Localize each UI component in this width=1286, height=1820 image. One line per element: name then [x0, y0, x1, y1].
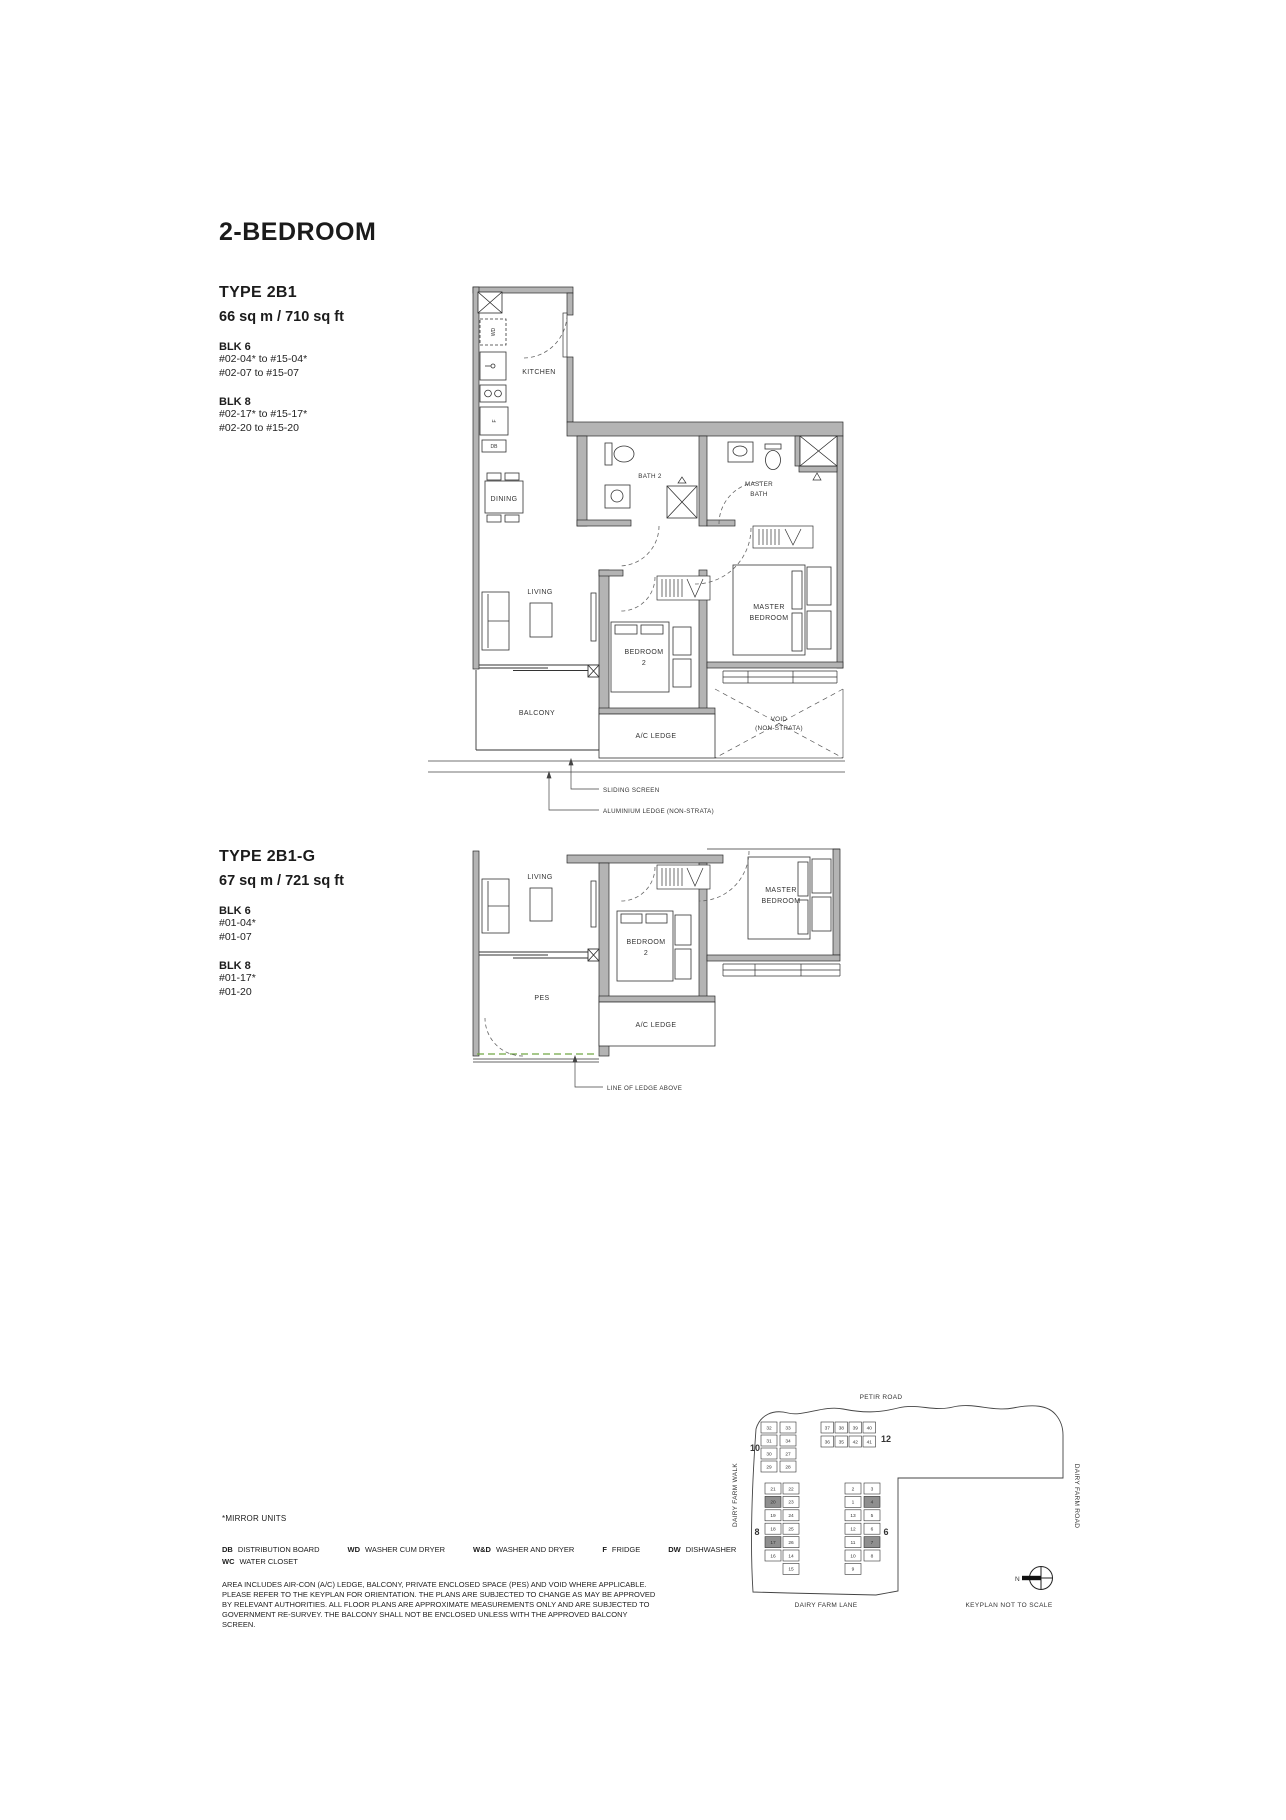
bedroom2-door-arc — [621, 867, 655, 901]
master-bedroom-label-1: MASTER — [765, 887, 797, 894]
keyplan-unit-number: 7 — [871, 1540, 874, 1546]
kitchen-label: KITCHEN — [522, 369, 556, 376]
void-label-1: VOID — [771, 716, 788, 723]
living-label: LIVING — [527, 874, 552, 881]
legend-item: FFRIDGE — [602, 1545, 640, 1554]
void-label-2: (NON-STRATA) — [755, 725, 803, 732]
sliding-screen-annotation: SLIDING SCREEN — [603, 787, 659, 794]
keyplan-unit-number: 13 — [850, 1513, 856, 1519]
ledge-leader — [573, 1056, 603, 1087]
kitchen-fixtures — [480, 319, 508, 452]
master-bath-fixtures — [728, 442, 781, 470]
keyplan-unit-number: 35 — [839, 1439, 845, 1445]
keyplan-block-number: 12 — [881, 1434, 891, 1444]
triangle-marker — [813, 473, 821, 480]
pes-boundary — [473, 1018, 599, 1062]
db-label: DB — [491, 444, 499, 450]
legend: *MIRROR UNITS DBDISTRIBUTION BOARD WDWAS… — [222, 1514, 667, 1630]
keyplan-unit-number: 4 — [871, 1500, 874, 1506]
keyplan-unit-number: 39 — [853, 1425, 859, 1431]
road-label-left: DAIRY FARM WALK — [732, 1463, 739, 1527]
keyplan-unit-number: 25 — [788, 1527, 794, 1533]
pes-label: PES — [534, 995, 549, 1002]
keyplan-block-number: 8 — [754, 1527, 759, 1537]
keyplan-unit-number: 6 — [871, 1527, 874, 1533]
bath2-door-arc — [619, 526, 659, 566]
keyplan-unit-number: 21 — [770, 1486, 776, 1492]
keyplan-unit-number: 28 — [785, 1464, 791, 1470]
balcony-outline — [476, 665, 599, 750]
bedroom2-wardrobe — [657, 576, 710, 600]
floorplan-type-2b1g: LIVING PES BEDROOM 2 MASTER BEDROOM A/C … — [403, 843, 853, 1173]
master-bath-door-arc — [719, 482, 761, 524]
keyplan-unit-number: 27 — [785, 1451, 791, 1457]
keyplan-unit-number: 42 — [853, 1439, 859, 1445]
keyplan-unit-number: 31 — [766, 1438, 772, 1444]
mirror-units-note: *MIRROR UNITS — [222, 1514, 667, 1523]
keyplan-unit-number: 2 — [852, 1486, 855, 1492]
master-wardrobe — [753, 526, 813, 548]
master-bath-label-2: BATH — [750, 491, 768, 498]
keyplan-unit-number: 1 — [852, 1500, 855, 1506]
keyplan-unit-number: 41 — [867, 1439, 873, 1445]
aluminium-ledge-annotation: ALUMINIUM LEDGE (NON-STRATA) — [603, 808, 714, 815]
brochure-page: 2-BEDROOM TYPE 2B1 66 sq m / 710 sq ft B… — [0, 0, 1286, 1820]
bedroom2-label-1: BEDROOM — [627, 939, 666, 946]
entrance-door — [523, 313, 567, 358]
bedroom2-label-2: 2 — [644, 950, 648, 957]
legend-row-2: WCWATER CLOSET — [222, 1557, 667, 1566]
legend-item: WCWATER CLOSET — [222, 1557, 298, 1566]
keyplan-note: KEYPLAN NOT TO SCALE — [965, 1602, 1052, 1609]
living-label: LIVING — [527, 589, 552, 596]
keyplan-unit-number: 15 — [788, 1567, 794, 1573]
dining-label: DINING — [491, 496, 518, 503]
keyplan-unit-number: 34 — [785, 1438, 791, 1444]
line-of-ledge-annotation: LINE OF LEDGE ABOVE — [607, 1085, 682, 1092]
balcony-label: BALCONY — [519, 710, 555, 717]
master-bedroom-label-2: BEDROOM — [750, 615, 789, 622]
keyplan-unit-number: 5 — [871, 1513, 874, 1519]
master-bath-label-1: MASTER — [745, 481, 773, 488]
road-label-bottom: DAIRY FARM LANE — [795, 1602, 858, 1609]
disclaimer-text: AREA INCLUDES AIR-CON (A/C) LEDGE, BALCO… — [222, 1580, 658, 1630]
bedroom2-furniture — [611, 622, 691, 692]
bath2-label: BATH 2 — [638, 473, 662, 480]
keyplan-unit-number: 40 — [867, 1425, 873, 1431]
bedroom2-wardrobe — [657, 865, 710, 889]
legend-item: DWDISHWASHER — [668, 1545, 736, 1554]
keyplan-unit-number: 23 — [788, 1500, 794, 1506]
keyplan-block-number: 6 — [883, 1527, 888, 1537]
keyplan-unit-number: 12 — [850, 1527, 856, 1533]
keyplan-unit-number: 32 — [766, 1425, 772, 1431]
keyplan-unit-number: 37 — [825, 1425, 831, 1431]
keyplan-unit-number: 30 — [766, 1451, 772, 1457]
bath2-fixtures — [605, 443, 697, 518]
floorplan-type-2b1: WD F DB — [403, 237, 853, 827]
keyplan-unit-number: 16 — [770, 1553, 776, 1559]
void-area — [715, 689, 843, 758]
bedroom2-label-1: BEDROOM — [625, 649, 664, 656]
legend-item: WDWASHER CUM DRYER — [348, 1545, 446, 1554]
keyplan-unit-number: 22 — [788, 1486, 794, 1492]
keyplan-unit-number: 19 — [770, 1513, 776, 1519]
keyplan-unit-number: 9 — [852, 1567, 855, 1573]
ledge-lines — [428, 759, 845, 810]
keyplan-unit-number: 10 — [850, 1553, 856, 1559]
living-furniture — [482, 879, 596, 933]
keyplan-unit-number: 14 — [788, 1553, 794, 1559]
keyplan-unit-number: 3 — [871, 1486, 874, 1492]
ac-ledge-label: A/C LEDGE — [636, 1022, 677, 1029]
keyplan-unit-number: 33 — [785, 1425, 791, 1431]
master-bedroom-label-2: BEDROOM — [762, 898, 801, 905]
wd-label: WD — [491, 327, 497, 336]
keyplan-unit-number: 11 — [851, 1540, 856, 1546]
sliding-door — [479, 949, 599, 961]
road-label-right: DAIRY FARM ROAD — [1073, 1464, 1080, 1529]
shaft-boxes — [478, 292, 837, 466]
page-title: 2-BEDROOM — [219, 218, 376, 247]
bedroom2-furniture — [617, 911, 691, 981]
legend-item: DBDISTRIBUTION BOARD — [222, 1545, 320, 1554]
keyplan-unit-number: 38 — [839, 1425, 845, 1431]
fridge-label: F — [492, 419, 498, 422]
keyplan-unit-number: 8 — [871, 1553, 874, 1559]
keyplan-unit-number: 17 — [770, 1540, 776, 1546]
road-label-top: PETIR ROAD — [860, 1394, 903, 1401]
keyplan-unit-number: 26 — [788, 1540, 794, 1546]
keyplan-unit-number: 36 — [825, 1439, 831, 1445]
keyplan-block-number: 10 — [750, 1443, 760, 1453]
keyplan-unit-blocks: 1032313029333427281237383940363542418212… — [750, 1422, 891, 1574]
legend-item: W&DWASHER AND DRYER — [473, 1545, 574, 1554]
north-label: N — [1015, 1576, 1020, 1583]
keyplan: 1032313029333427281237383940363542418212… — [728, 1385, 1088, 1625]
master-windows — [723, 964, 840, 976]
bedroom2-door-arc — [621, 577, 655, 611]
keyplan-unit-number: 18 — [770, 1527, 776, 1533]
master-windows — [723, 671, 837, 683]
ac-ledge-label: A/C LEDGE — [636, 733, 677, 740]
keyplan-unit-number: 20 — [770, 1500, 776, 1506]
master-bedroom-label-1: MASTER — [753, 604, 785, 611]
north-compass-icon: N — [1015, 1567, 1053, 1590]
keyplan-unit-number: 29 — [766, 1464, 772, 1470]
living-furniture — [482, 592, 596, 650]
keyplan-unit-number: 24 — [788, 1513, 794, 1519]
bedroom2-label-2: 2 — [642, 660, 646, 667]
legend-row-1: DBDISTRIBUTION BOARD WDWASHER CUM DRYER … — [222, 1545, 667, 1554]
